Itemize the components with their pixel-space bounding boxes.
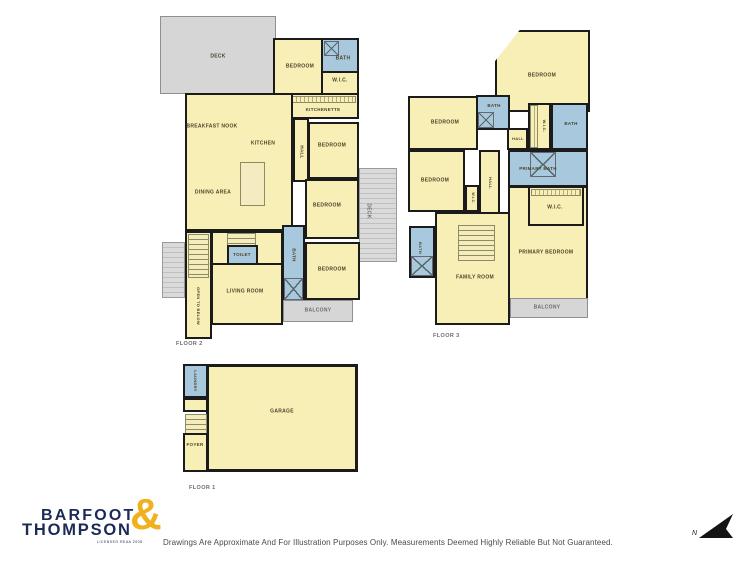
floor3-wic-sw-label: W.I.C. [470, 192, 474, 203]
floor2-bedroom-east1-label: BEDROOM [318, 144, 346, 149]
floor3-bath-east [551, 103, 588, 150]
floor3-primary-bath-label: PRIMARY BATH [519, 167, 557, 172]
floor1-closet [183, 398, 208, 412]
floor1-plan: GARAGE LAUNDRY FOYER FLOOR 1 [180, 362, 364, 494]
logo-line2: THOMPSON [22, 521, 132, 540]
floor2-bath-south-shower [284, 278, 303, 300]
floor3-primary-bath-shower [530, 152, 556, 177]
floor2-bedroom-east3-label: BEDROOM [318, 268, 346, 273]
floor3-bedroom-ne-label: BEDROOM [528, 74, 556, 79]
floor3-title: FLOOR 3 [433, 333, 460, 339]
barfoot-thompson-logo: BARFOOT THOMPSON & LICENSED REAA 2008 [30, 498, 180, 550]
floor2-bedroom-east2-label: BEDROOM [313, 204, 341, 209]
floor3-family-room-label: FAMILY ROOM [456, 276, 494, 281]
floor2-bedroom-east1 [308, 122, 359, 179]
floor2-open-below-label: OPEN TO BELOW [196, 287, 200, 325]
north-arrow-icon [698, 512, 736, 542]
floor3-hall-north-label: HALL [512, 137, 524, 141]
floor2-toilet-label: TOILET [233, 253, 251, 258]
floor3-bedroom-sw-label: BEDROOM [421, 179, 449, 184]
floor3-plan: BEDROOM BEDROOM BATH W.I.C. BATH HALL PR… [405, 28, 597, 346]
floor2-bath-north-shower [324, 41, 339, 56]
floor3-wic-room-closet [531, 189, 581, 196]
floor3-bath-west-label: BATH [418, 242, 422, 254]
floor3-bath-east-label: BATH [564, 122, 577, 127]
floor1-laundry-label: LAUNDRY [193, 370, 197, 392]
floor3-bath-center-label: BATH [487, 104, 500, 109]
floor2-open-area [185, 93, 293, 231]
floor2-deck-nw-label: DECK [210, 55, 225, 60]
floor3-primary-bedroom-label: PRIMARY BEDROOM [519, 251, 574, 256]
floorplan-page: DECK BEDROOM BATH W.I.C. KITCHENETTE BRE… [0, 0, 749, 562]
floor2-deck-east-label: DECK [366, 203, 371, 218]
floor2-stairs-west [188, 234, 209, 278]
floor1-foyer-label: FOYER [186, 443, 203, 448]
floor3-bath-west-shower [411, 256, 433, 276]
floor3-wic-north-closet [530, 105, 538, 148]
north-arrow: N [692, 512, 736, 544]
floor2-wic-north-label: W.I.C. [332, 79, 347, 84]
floor2-plan: DECK BEDROOM BATH W.I.C. KITCHENETTE BRE… [150, 14, 398, 354]
floor2-kitchenette-label: KITCHENETTE [306, 108, 341, 113]
floor3-hall-south-label: HALL [488, 177, 492, 189]
floor2-title: FLOOR 2 [176, 341, 203, 347]
floor3-balcony-label: BALCONY [534, 306, 561, 311]
floor2-deck-west [162, 242, 185, 298]
floor1-stairs [185, 414, 207, 434]
disclaimer-text: Drawings Are Approximate And For Illustr… [163, 538, 613, 547]
floor2-kitchenette-counter [292, 96, 356, 103]
floor2-kitchen-island [240, 162, 265, 206]
floor1-garage [206, 364, 358, 472]
floor1-title: FLOOR 1 [189, 485, 216, 491]
floor1-foyer [183, 433, 208, 472]
floor2-balcony-label: BALCONY [305, 309, 332, 314]
floor2-bath-south-label: BATH [291, 248, 296, 261]
floor1-garage-label: GARAGE [270, 410, 294, 415]
floor2-living-room-label: LIVING ROOM [227, 290, 264, 295]
floor3-stairs [458, 225, 495, 261]
floor3-wic-room-label: W.I.C. [547, 206, 562, 211]
north-label: N [692, 530, 697, 537]
floor2-kitchen-label: KITCHEN [251, 142, 275, 147]
logo-tagline: LICENSED REAA 2008 [97, 540, 143, 544]
floor2-hall-mid-label: HALL [299, 145, 304, 158]
floor2-dining-label: DINING AREA [195, 191, 231, 196]
floor3-bedroom-west-label: BEDROOM [431, 121, 459, 126]
floor2-breakfast-nook-label: BREAKFAST NOOK [186, 125, 237, 130]
floor2-bath-north-label: BATH [336, 57, 351, 62]
logo-ampersand-icon: & [130, 490, 162, 540]
floor2-bedroom-east2 [305, 179, 359, 239]
floor3-bath-center-shower [478, 112, 494, 128]
floor3-wic-north-label: W.I.C. [542, 120, 546, 133]
floor2-bedroom-north-label: BEDROOM [286, 65, 314, 70]
